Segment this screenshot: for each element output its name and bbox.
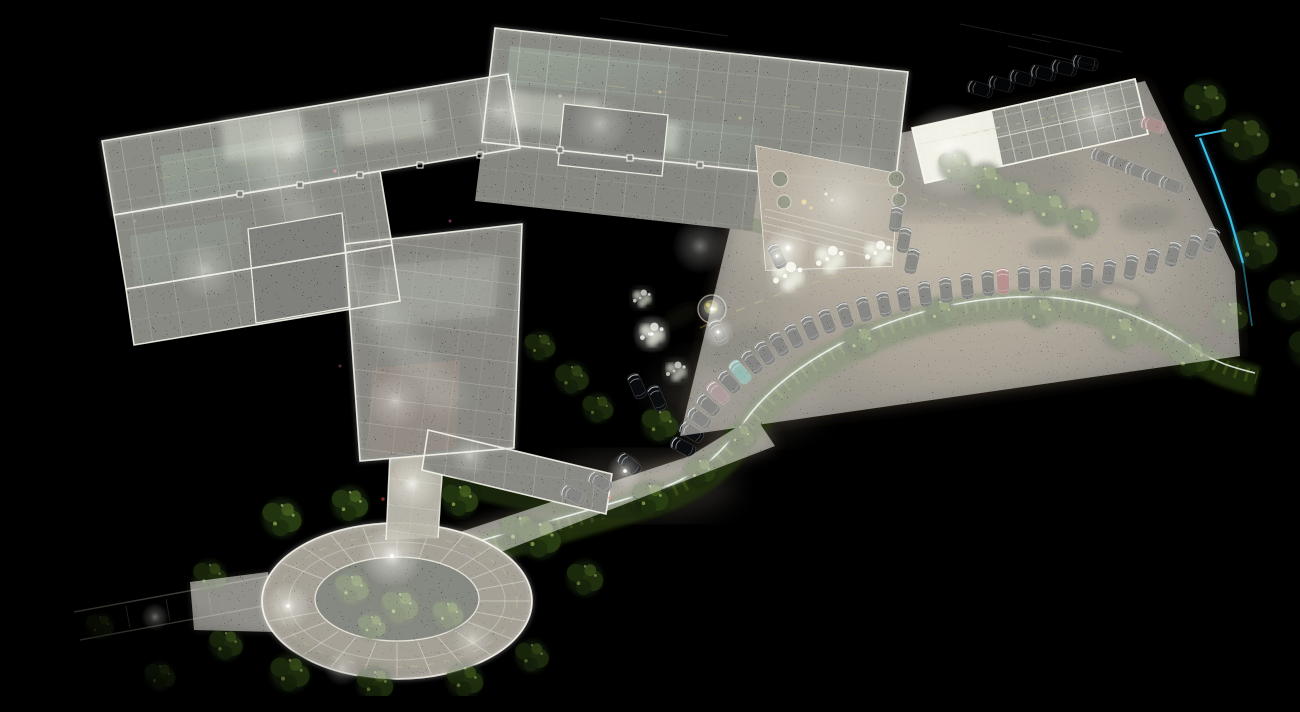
lidar-scene-canvas: Top-down orthographic night view of a Li… xyxy=(40,16,1300,696)
pointcloud-viewport: Top-down orthographic night view of a Li… xyxy=(40,16,1300,696)
vignette xyxy=(40,16,1300,696)
